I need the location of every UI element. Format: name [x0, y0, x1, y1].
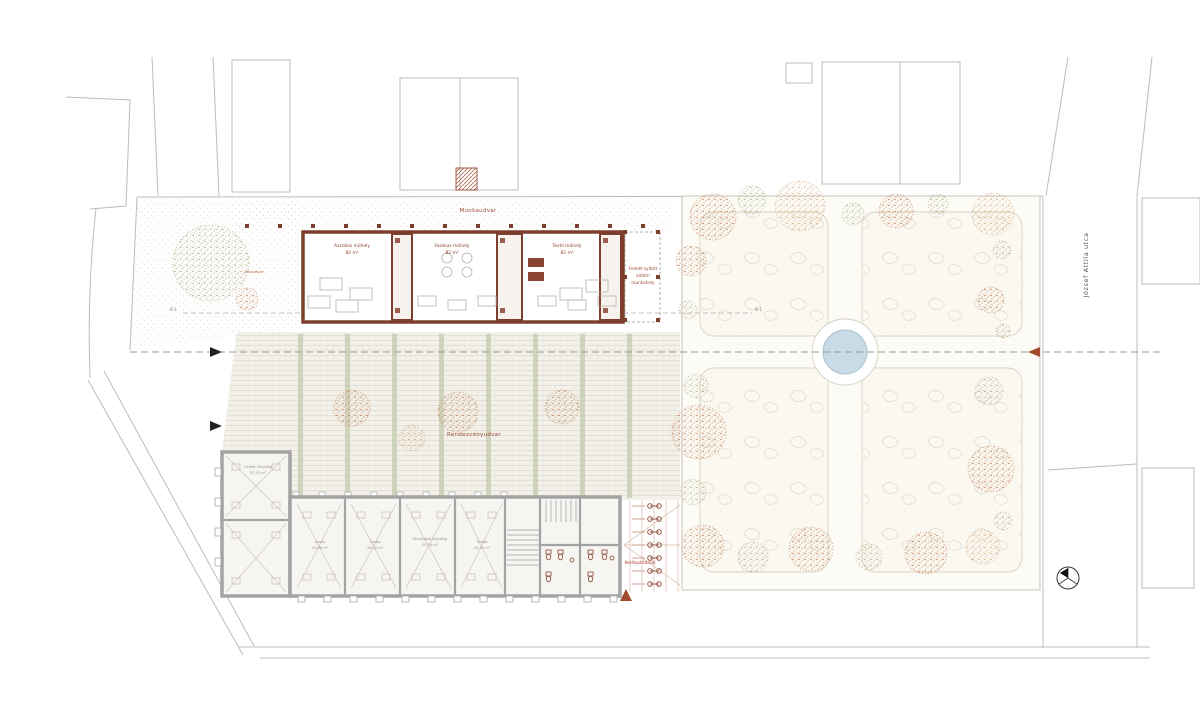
- room-name: Fazekas műhely: [434, 243, 469, 249]
- room-name: Textil műhely: [551, 243, 581, 249]
- site-plan-drawing: B-1 B-1: [0, 0, 1200, 712]
- label-rendezvenyudvar: Rendezvényudvar: [447, 431, 501, 438]
- room-name: Asztalos műhely: [334, 243, 370, 249]
- section-label-left: B-1: [170, 307, 177, 312]
- site-plan: B-1 B-1: [0, 0, 1200, 712]
- label-covered-area: Fedett-nyitott kültéri munkahely: [629, 266, 658, 285]
- label-street: József Attila utca: [1082, 232, 1090, 298]
- workshop-building: [245, 224, 660, 322]
- bike-storage: [620, 500, 680, 601]
- room-area: 57,55 m²: [250, 471, 267, 475]
- room-area: 34,32 m²: [367, 546, 384, 550]
- label-left-yard: Díszudvar: [245, 269, 264, 274]
- room-area: 29,76 m²: [422, 543, 439, 547]
- label-munkaudvar: Munkaudvar: [459, 208, 496, 214]
- label-bike-storage: Kerékpártároló: [625, 560, 656, 565]
- room-area: 82 m²: [345, 250, 358, 256]
- svg-text:kültéri: kültéri: [636, 273, 649, 278]
- room-name: Szoba: [370, 540, 381, 544]
- room-name: Fedett helyiség: [244, 465, 272, 469]
- room-area: 25,41 m²: [474, 546, 491, 550]
- direction-arrow-left2-icon: [210, 421, 222, 431]
- room-area: 82 m²: [560, 250, 573, 256]
- svg-text:Fedett-nyitott: Fedett-nyitott: [629, 266, 658, 271]
- direction-arrow-left-icon: [210, 347, 222, 357]
- north-arrow-icon: [1057, 567, 1079, 589]
- room-area: 34,66 m²: [312, 546, 329, 550]
- room-name: Szoba: [315, 540, 326, 544]
- room-area: 82 m²: [445, 250, 458, 256]
- room-name: Szoba: [477, 540, 488, 544]
- room-name: Kiszolgáló helyiség: [413, 537, 447, 541]
- svg-text:munkahely: munkahely: [631, 280, 655, 285]
- section-label-right: B-1: [755, 307, 762, 312]
